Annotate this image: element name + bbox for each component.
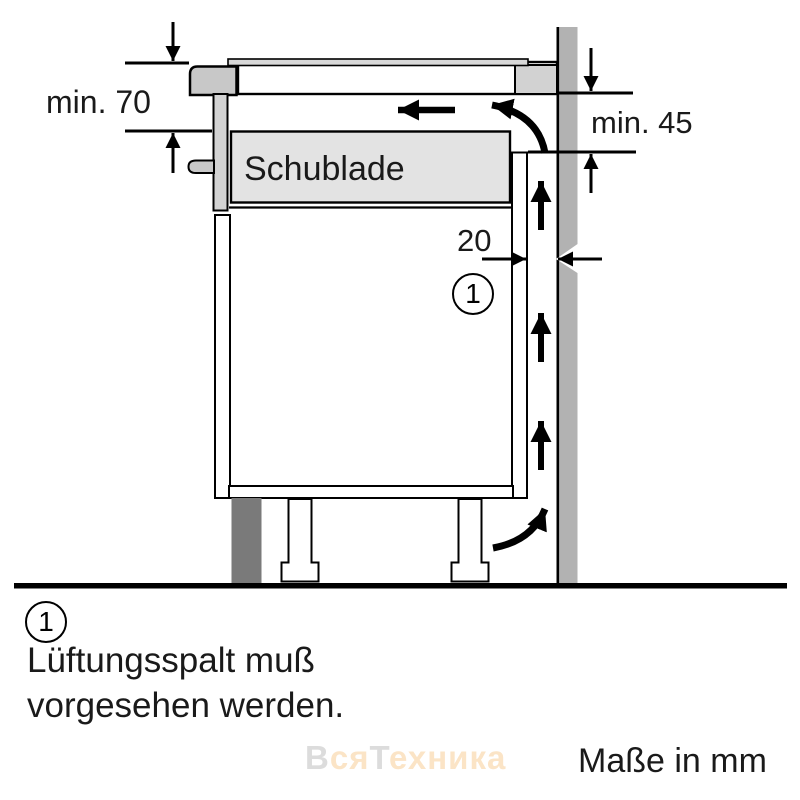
watermark-part-4: ехника [389, 739, 506, 776]
callout-1-legend: 1 [25, 601, 67, 643]
callout-1-diagram: 1 [452, 273, 494, 315]
drawer-label: Schublade [244, 150, 405, 189]
wall [559, 27, 578, 583]
dim-label-20: 20 [457, 223, 491, 259]
hob-body [190, 67, 237, 96]
cabinet-bottom-panel [229, 486, 513, 498]
cabinet-left-panel [215, 215, 230, 498]
legend-text-line1: Lüftungsspalt muß [27, 641, 315, 681]
cabinet-right-panel [512, 153, 527, 499]
drawer-front-panel [214, 94, 228, 211]
airflow-arrow-curved-bottom-icon [493, 509, 545, 548]
callout-1-legend-number: 1 [38, 606, 54, 638]
installation-diagram: min. 70 min. 45 20 Schublade 1 1 Lüftung… [0, 0, 800, 800]
drawer-handle [189, 161, 215, 174]
plinth [232, 498, 262, 583]
wall-edge-line [557, 27, 560, 583]
floor-line [14, 583, 787, 589]
wall-batten [515, 65, 557, 94]
dim-label-min45: min. 45 [591, 105, 693, 141]
units-note: Maße in mm [578, 742, 767, 781]
watermark-part-2: ся [330, 739, 370, 776]
callout-1-diagram-number: 1 [465, 278, 481, 310]
worktop [238, 62, 557, 94]
hob-glass [228, 59, 528, 66]
watermark: ВсяТехника [305, 739, 506, 777]
dim-label-min70: min. 70 [46, 84, 151, 121]
legend-text-line2: vorgesehen werden. [27, 686, 344, 726]
cabinet-leg-front [282, 499, 319, 582]
cabinet-leg-rear [452, 499, 489, 582]
watermark-part-3: Т [369, 739, 389, 776]
watermark-part-1: В [305, 739, 330, 776]
